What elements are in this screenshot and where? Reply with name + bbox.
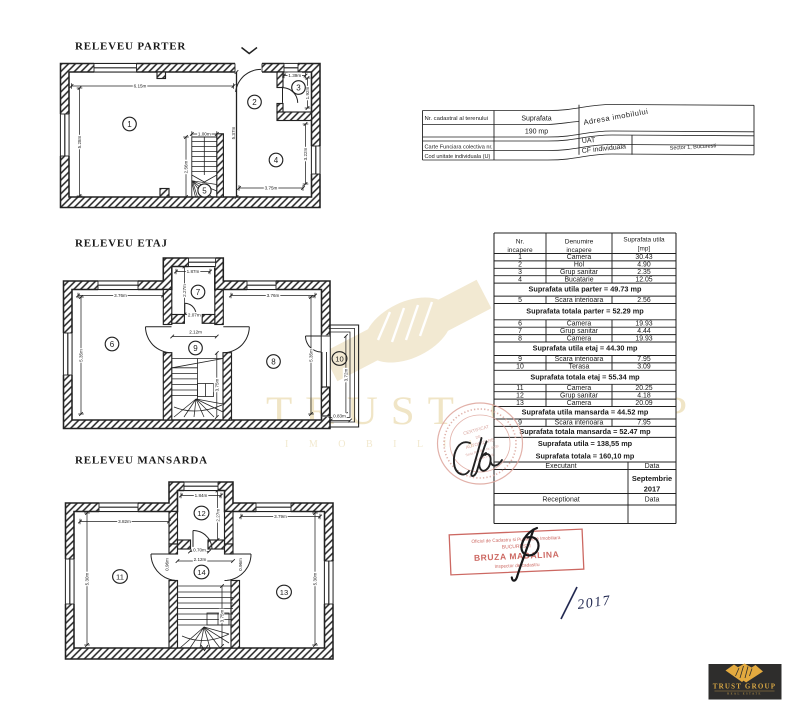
svg-text:30.43: 30.43	[635, 254, 652, 261]
svg-text:Suprafata utila etaj = 44.30: Suprafata utila etaj = 44.30 mp	[533, 344, 638, 353]
svg-text:Carte Funciara colectiva nr.: Carte Funciara colectiva nr.	[425, 145, 494, 151]
svg-text:1.92m: 1.92m	[305, 86, 310, 99]
svg-text:Camera: Camera	[567, 321, 592, 328]
svg-text:11: 11	[516, 385, 523, 392]
svg-text:3.76m: 3.76m	[114, 293, 127, 298]
svg-text:[mp]: [mp]	[638, 246, 651, 253]
svg-text:13: 13	[280, 588, 288, 597]
svg-text:2.56: 2.56	[637, 297, 651, 304]
svg-text:13: 13	[516, 400, 524, 407]
svg-text:Grup sanitar: Grup sanitar	[560, 328, 599, 335]
svg-text:1: 1	[127, 120, 132, 129]
svg-text:incapere: incapere	[566, 247, 592, 254]
svg-text:3.09: 3.09	[637, 364, 651, 371]
svg-text:2017: 2017	[644, 485, 660, 494]
svg-text:1: 1	[518, 254, 522, 261]
svg-text:19.93: 19.93	[635, 321, 652, 328]
svg-text:5: 5	[202, 186, 207, 195]
svg-text:RELEVEU PARTER: RELEVEU PARTER	[75, 41, 186, 53]
svg-text:0.96m: 0.96m	[165, 558, 170, 571]
svg-text:7.95: 7.95	[637, 420, 651, 427]
svg-text:7: 7	[518, 328, 522, 335]
svg-text:2.56m: 2.56m	[184, 160, 189, 173]
svg-text:3.82m: 3.82m	[118, 519, 131, 524]
svg-text:TRUST GROUP: TRUST GROUP	[713, 683, 776, 691]
svg-text:Grup sanitar: Grup sanitar	[560, 392, 599, 399]
svg-text:Terasa: Terasa	[569, 364, 590, 371]
svg-text:Suprafata totala parter = 52: Suprafata totala parter = 52.29 mp	[526, 307, 644, 316]
svg-text:5.28m: 5.28m	[77, 135, 82, 148]
svg-text:Nr.: Nr.	[516, 239, 525, 246]
svg-text:14: 14	[197, 568, 205, 577]
svg-text:3.75m: 3.75m	[220, 609, 225, 622]
svg-text:190 mp: 190 mp	[525, 129, 548, 136]
svg-text:3.72m: 3.72m	[344, 368, 349, 381]
svg-text:19.93: 19.93	[635, 335, 652, 342]
svg-text:Scara interioara: Scara interioara	[555, 420, 604, 427]
svg-text:5.37m: 5.37m	[231, 126, 236, 139]
svg-text:12: 12	[197, 509, 205, 518]
svg-text:REAL ESTATE: REAL ESTATE	[727, 692, 761, 696]
svg-text:Scara interioara: Scara interioara	[555, 356, 604, 363]
svg-text:3.79m: 3.79m	[274, 514, 287, 519]
svg-text:6.15m: 6.15m	[134, 84, 147, 89]
svg-text:Data: Data	[645, 497, 660, 504]
svg-text:4.44: 4.44	[637, 328, 651, 335]
svg-text:1.87m: 1.87m	[187, 269, 200, 274]
svg-text:8: 8	[271, 357, 276, 366]
svg-text:Suprafata totala = 160,10 mp: Suprafata totala = 160,10 mp	[536, 452, 635, 461]
svg-text:Suprafata utila parter = 49.: Suprafata utila parter = 49.73 mp	[529, 285, 642, 294]
svg-text:0.70m: 0.70m	[193, 548, 206, 553]
svg-text:12: 12	[516, 392, 524, 399]
svg-text:12.05: 12.05	[635, 276, 652, 283]
svg-text:9: 9	[193, 344, 198, 353]
svg-text:UAT: UAT	[582, 137, 597, 145]
svg-text:Nr. cadastral al terenului: Nr. cadastral al terenului	[425, 116, 489, 122]
svg-text:Suprafata utila: Suprafata utila	[623, 237, 665, 244]
svg-text:5.35m: 5.35m	[79, 349, 84, 362]
svg-text:0.83m: 0.83m	[333, 414, 346, 419]
svg-text:Executant: Executant	[545, 463, 576, 470]
svg-text:4: 4	[518, 276, 522, 283]
svg-text:2.27m: 2.27m	[182, 284, 187, 297]
svg-text:Suprafata utila mansarda = 4: Suprafata utila mansarda = 44.52 mp	[522, 408, 649, 417]
svg-text:RELEVEU MANSARDA: RELEVEU MANSARDA	[75, 455, 208, 467]
svg-text:Hol: Hol	[574, 262, 585, 269]
svg-text:incapere: incapere	[507, 247, 533, 254]
svg-text:4.18: 4.18	[637, 392, 651, 399]
svg-text:2: 2	[518, 262, 522, 269]
svg-text:Suprafata totala mansarda =: Suprafata totala mansarda = 52.47 mp	[519, 427, 651, 436]
svg-text:RELEVEU ETAJ: RELEVEU ETAJ	[75, 238, 168, 250]
svg-text:2.07m: 2.07m	[188, 313, 201, 318]
svg-text:Cod unitate individuala (U): Cod unitate individuala (U)	[425, 154, 491, 160]
svg-text:11: 11	[116, 572, 124, 581]
svg-text:10: 10	[335, 354, 343, 363]
svg-text:8: 8	[518, 335, 522, 342]
svg-text:Septembrie: Septembrie	[632, 474, 672, 483]
svg-text:3: 3	[518, 269, 522, 276]
svg-text:0.96m: 0.96m	[238, 558, 243, 571]
svg-text:1.39m: 1.39m	[288, 73, 301, 78]
svg-text:5.30m: 5.30m	[313, 572, 318, 585]
svg-text:3.76m: 3.76m	[267, 293, 280, 298]
svg-text:2.27m: 2.27m	[215, 509, 220, 522]
svg-text:Data: Data	[645, 463, 660, 470]
svg-text:3: 3	[296, 83, 301, 92]
svg-text:4.90: 4.90	[637, 262, 651, 269]
svg-text:2: 2	[252, 98, 257, 107]
svg-text:Camera: Camera	[567, 400, 592, 407]
svg-text:5: 5	[518, 297, 522, 304]
svg-text:Bucatarie: Bucatarie	[564, 276, 593, 283]
svg-text:Camera: Camera	[567, 385, 592, 392]
svg-text:4: 4	[274, 156, 279, 165]
svg-text:1.00m: 1.00m	[198, 132, 211, 137]
svg-text:2.12m: 2.12m	[189, 330, 202, 335]
svg-text:2.12m: 2.12m	[194, 557, 207, 562]
svg-text:1.84m: 1.84m	[195, 493, 208, 498]
svg-text:10: 10	[516, 364, 524, 371]
svg-text:3.75m: 3.75m	[265, 186, 278, 191]
svg-text:5.30m: 5.30m	[85, 572, 90, 585]
svg-text:Camera: Camera	[567, 335, 592, 342]
svg-text:Grup sanitar: Grup sanitar	[560, 269, 599, 276]
svg-text:20.09: 20.09	[635, 400, 652, 407]
svg-text:Receptionat: Receptionat	[542, 497, 579, 504]
svg-text:6: 6	[110, 340, 115, 349]
svg-text:3.75m: 3.75m	[215, 378, 220, 391]
svg-text:Suprafata totala etaj = 55.3: Suprafata totala etaj = 55.34 mp	[530, 372, 640, 381]
svg-text:7.95: 7.95	[637, 356, 651, 363]
svg-text:7: 7	[196, 288, 201, 297]
svg-text:3.22m: 3.22m	[303, 147, 308, 160]
svg-text:Denumire: Denumire	[565, 239, 594, 246]
svg-text:Scara interioara: Scara interioara	[555, 297, 604, 304]
svg-text:2.35: 2.35	[637, 269, 651, 276]
svg-text:9: 9	[518, 356, 522, 363]
svg-text:Suprafata: Suprafata	[521, 116, 551, 123]
svg-text:Suprafata utila = 138,55 mp: Suprafata utila = 138,55 mp	[538, 439, 633, 448]
svg-text:5.35m: 5.35m	[309, 349, 314, 362]
svg-text:Camera: Camera	[567, 254, 592, 261]
svg-text:20.25: 20.25	[635, 385, 652, 392]
svg-text:6: 6	[518, 321, 522, 328]
